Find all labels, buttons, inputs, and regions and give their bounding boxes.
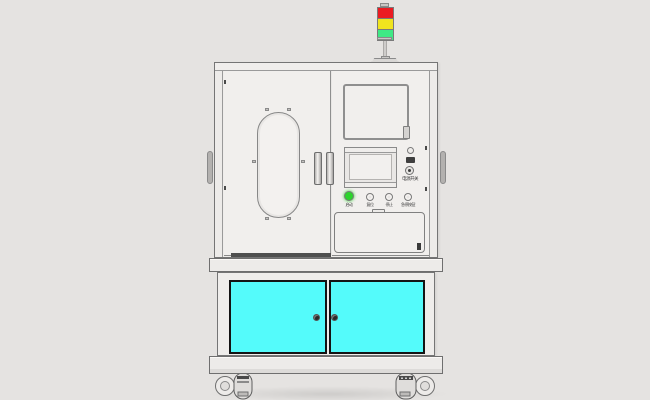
start-button-label: 启动 xyxy=(340,202,358,207)
upper-left-post xyxy=(215,71,223,257)
hmi-bottom-bezel xyxy=(345,182,396,187)
under-door-shadow xyxy=(231,253,331,257)
hmi-screen xyxy=(344,147,397,188)
reset-button-label: 复位 xyxy=(361,202,379,207)
hinge-mark xyxy=(425,146,427,150)
start-button xyxy=(344,191,354,201)
stop-button-label: 停止 xyxy=(380,202,398,207)
viewing-window xyxy=(257,112,300,218)
door-knob-left xyxy=(313,314,320,321)
upper-top-rail xyxy=(215,63,437,71)
window-clip xyxy=(265,108,269,111)
hinge-mark xyxy=(425,187,427,191)
key-switch-icon xyxy=(405,166,414,175)
access-panel-latch xyxy=(417,243,421,250)
upper-window xyxy=(343,84,409,140)
hmi-display xyxy=(349,154,392,180)
window-clip xyxy=(265,217,269,220)
aux-knob-icon xyxy=(407,147,414,154)
window-clip xyxy=(287,217,291,220)
reset-button xyxy=(366,193,374,201)
window-clip xyxy=(252,160,256,163)
tower-foot xyxy=(377,37,392,40)
hinge-mark xyxy=(224,80,226,84)
hinge-mark xyxy=(224,186,226,190)
machine-render: 电源开关 启动 复位 停止 急停按钮 xyxy=(0,0,650,400)
upper-window-latch xyxy=(403,126,410,139)
hmi-top-bezel xyxy=(345,148,396,153)
window-clip xyxy=(301,160,305,163)
side-handle-right xyxy=(440,151,446,184)
signal-tower-light xyxy=(377,7,394,41)
tower-segment-red-icon xyxy=(377,7,394,19)
bottom-rail xyxy=(209,356,443,374)
usb-port-icon xyxy=(406,157,415,163)
estop-button xyxy=(404,193,412,201)
estop-button-label: 急停按钮 xyxy=(397,202,419,207)
window-clip xyxy=(287,108,291,111)
left-door-handle xyxy=(314,152,322,185)
side-handle-left xyxy=(207,151,213,184)
right-door-handle xyxy=(326,152,334,185)
stop-button xyxy=(385,193,393,201)
cabinet-door-right xyxy=(329,280,425,354)
tower-segment-yellow-icon xyxy=(377,19,394,30)
upper-right-post xyxy=(429,71,437,257)
access-panel xyxy=(334,212,425,253)
door-knob-right xyxy=(331,314,338,321)
tabletop-band xyxy=(209,258,443,272)
side-panel-label: 电源开关 xyxy=(396,177,424,182)
